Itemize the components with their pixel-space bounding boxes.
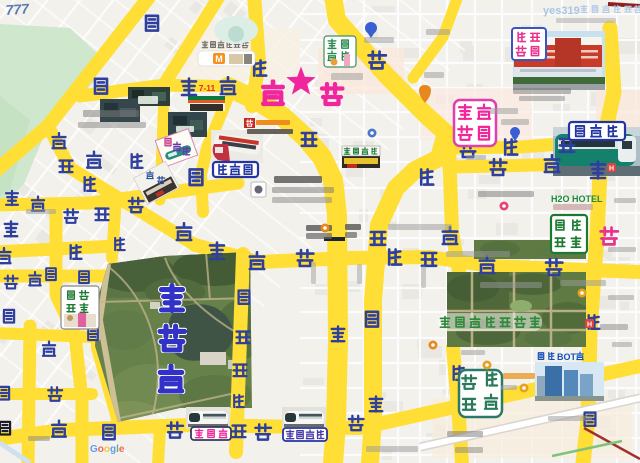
svg-text:777: 777 (5, 0, 31, 18)
svg-text:7-11: 7-11 (199, 83, 216, 93)
svg-text:H: H (587, 322, 592, 329)
svg-text:yes319: yes319 (543, 5, 580, 17)
svg-text:Google: Google (90, 444, 125, 455)
svg-text:M: M (215, 54, 223, 64)
svg-text:H: H (609, 166, 614, 173)
svg-text:BOT: BOT (557, 352, 577, 362)
svg-text:H2O HOTEL: H2O HOTEL (551, 194, 603, 204)
